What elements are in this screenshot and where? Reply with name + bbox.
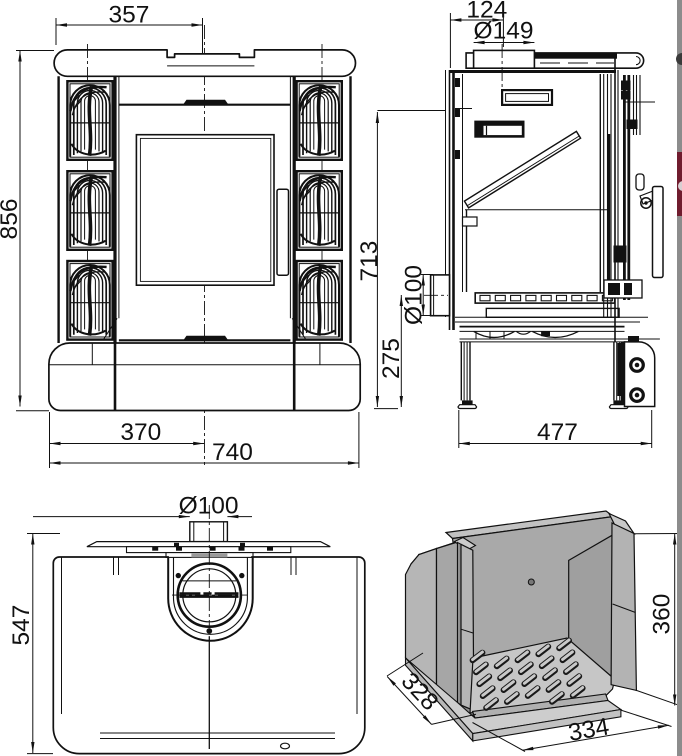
svg-text:357: 357 [109,2,150,29]
svg-text:740: 740 [212,439,253,466]
svg-text:477: 477 [537,419,578,446]
svg-text:370: 370 [120,419,161,446]
svg-text:360: 360 [649,594,676,635]
svg-text:713: 713 [356,241,383,282]
svg-text:Ø100: Ø100 [179,493,239,520]
svg-text:Ø149: Ø149 [474,18,534,45]
svg-text:547: 547 [8,605,35,646]
